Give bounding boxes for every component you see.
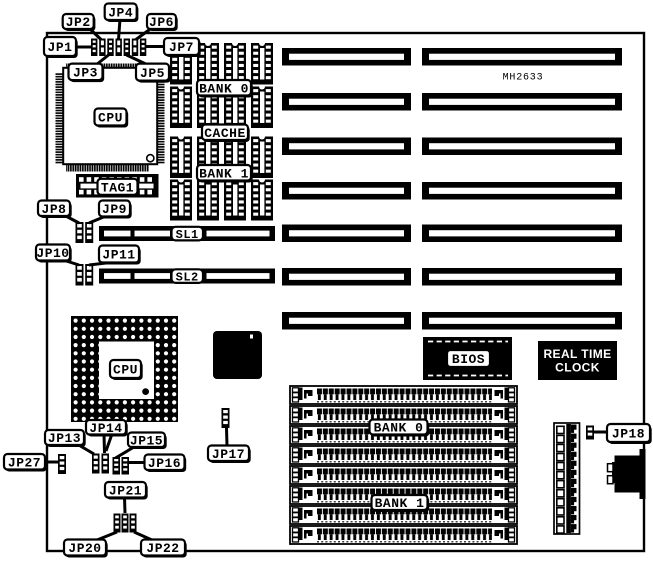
svg-text:JP17: JP17 [212, 447, 245, 462]
svg-text:TAG1: TAG1 [101, 181, 134, 196]
svg-text:CLOCK: CLOCK [555, 361, 600, 375]
svg-text:BANK 1: BANK 1 [375, 496, 425, 511]
svg-text:JP27: JP27 [8, 455, 41, 470]
svg-text:JP14: JP14 [89, 421, 122, 436]
svg-text:CACHE: CACHE [204, 126, 246, 141]
svg-text:JP4: JP4 [108, 5, 133, 20]
svg-text:JP7: JP7 [169, 40, 194, 55]
svg-text:MH2633: MH2633 [503, 73, 544, 84]
svg-text:REAL TIME: REAL TIME [543, 347, 611, 361]
svg-text:JP6: JP6 [149, 15, 174, 30]
svg-text:JP1: JP1 [48, 40, 73, 55]
svg-text:JP22: JP22 [146, 541, 179, 556]
svg-text:JP3: JP3 [73, 66, 98, 81]
svg-text:JP9: JP9 [102, 202, 127, 217]
svg-text:JP16: JP16 [148, 456, 181, 471]
svg-text:BANK 1: BANK 1 [199, 166, 249, 181]
svg-text:JP5: JP5 [140, 66, 165, 81]
svg-text:JP10: JP10 [36, 246, 69, 261]
svg-text:JP8: JP8 [42, 202, 67, 217]
svg-text:BANK 0: BANK 0 [374, 421, 424, 436]
svg-text:SL2: SL2 [176, 270, 199, 284]
svg-text:CPU: CPU [98, 111, 123, 126]
svg-text:BIOS: BIOS [452, 352, 485, 367]
svg-text:JP15: JP15 [130, 433, 163, 448]
svg-text:JP21: JP21 [109, 483, 142, 498]
svg-text:JP13: JP13 [48, 431, 81, 446]
svg-text:JP18: JP18 [612, 427, 645, 442]
svg-text:CPU: CPU [113, 363, 138, 378]
svg-text:JP20: JP20 [68, 541, 101, 556]
svg-text:SL1: SL1 [176, 228, 199, 242]
svg-text:JP2: JP2 [66, 15, 91, 30]
svg-text:BANK 0: BANK 0 [199, 81, 249, 96]
svg-text:JP11: JP11 [102, 248, 135, 263]
